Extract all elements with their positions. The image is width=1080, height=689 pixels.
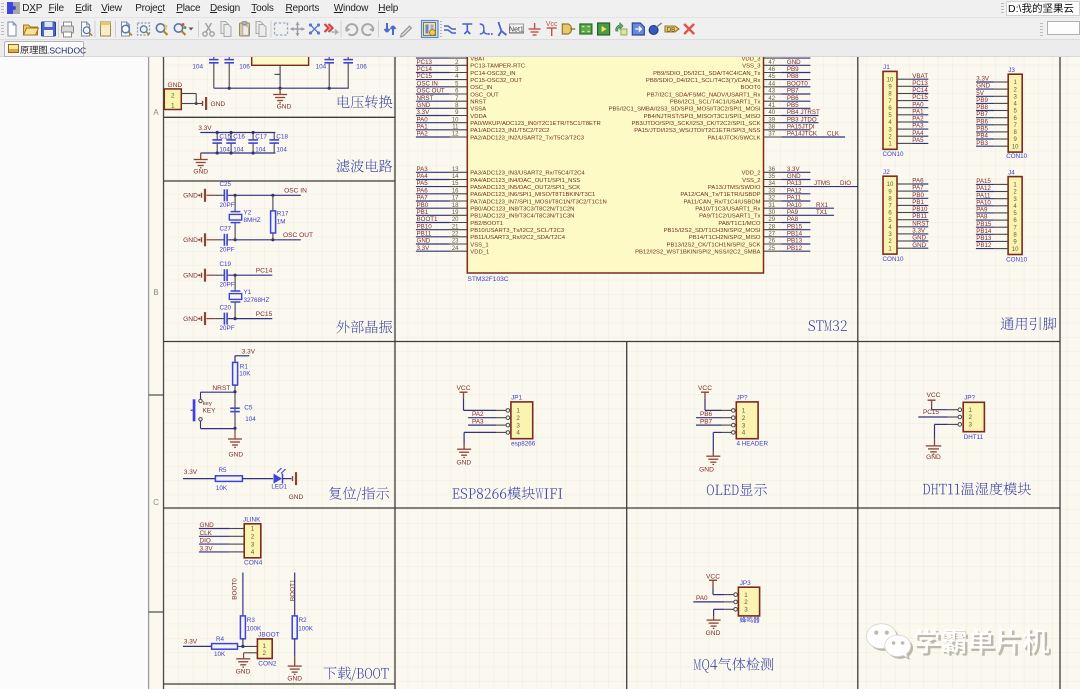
svg-text:10: 10 [452,117,459,123]
svg-text:PB4: PB4 [787,109,799,116]
svg-text:CON10: CON10 [1006,153,1027,160]
svg-text:GND: GND [277,104,292,111]
svg-text:PA3/ADC123_IN3/USART2_Rx/T5C4/: PA3/ADC123_IN3/USART2_Rx/T5C4/T2C4 [470,171,585,177]
svg-text:104: 104 [192,64,203,71]
svg-text:PB5: PB5 [976,126,988,133]
svg-text:3.3V: 3.3V [200,546,214,553]
svg-text:GND: GND [699,466,714,473]
svg-text:BOOT0: BOOT0 [787,80,809,87]
svg-text:JLINK: JLINK [243,517,261,524]
svg-text:PA15/JTDI/I2S3_WS/JTDI/T2C1ETR: PA15/JTDI/I2S3_WS/JTDI/T2C1ETR/SPI3_NSS [634,128,760,134]
svg-text:PA0/WKUP/ADC123_IN0/T2C1ETR/T5: PA0/WKUP/ADC123_IN0/T2C1ETR/T5C1/T8ETR [470,121,601,127]
svg-text:PB6: PB6 [787,95,799,102]
svg-text:20PF: 20PF [220,325,235,332]
svg-text:BOOT0: BOOT0 [741,85,762,91]
svg-text:C5: C5 [244,404,253,411]
svg-text:PC13: PC13 [912,80,928,87]
svg-text:C: C [153,498,159,507]
svg-text:GND: GND [200,522,215,529]
svg-text:GND: GND [211,101,226,108]
svg-text:Y1: Y1 [244,289,252,296]
svg-text:104: 104 [255,146,266,153]
svg-text:17: 17 [452,196,459,202]
svg-text:VDDA: VDDA [470,114,486,120]
svg-text:104: 104 [316,64,327,71]
svg-text:PB15: PB15 [787,223,803,230]
svg-text:TX1: TX1 [816,209,828,216]
svg-text:39: 39 [768,117,775,123]
svg-text:PA8: PA8 [787,216,799,223]
svg-text:4: 4 [742,430,746,437]
svg-text:20: 20 [452,217,459,223]
svg-text:PA14JTCK: PA14JTCK [787,131,818,138]
svg-text:1: 1 [744,592,748,599]
svg-text:32: 32 [768,196,775,202]
svg-text:PA12/CAN_Tx/T1ETR/USBDP: PA12/CAN_Tx/T1ETR/USBDP [680,192,760,198]
svg-text:PB4: PB4 [976,133,988,140]
svg-text:PB6/I2C1_SCL/T4C1/USART1_Tx: PB6/I2C1_SCL/T4C1/USART1_Tx [670,100,761,106]
svg-text:2: 2 [263,650,267,657]
svg-text:33: 33 [768,188,775,194]
svg-text:PB14: PB14 [787,230,803,237]
svg-text:DIO: DIO [840,180,851,187]
svg-text:GND: GND [183,316,198,323]
svg-text:PA7: PA7 [912,185,924,192]
svg-text:PA5: PA5 [912,137,924,144]
svg-text:PB14/T1CH2N/SPI2_MISO: PB14/T1CH2N/SPI2_MISO [689,235,761,241]
svg-text:GND: GND [183,193,198,200]
svg-text:36: 36 [768,167,775,173]
svg-text:PB0/ADC123_IN8/T3C3/T8C2N/T1C2: PB0/ADC123_IN8/T3C3/T8C2N/T1C2N [470,207,574,213]
svg-text:PA4: PA4 [912,130,924,137]
svg-text:PB7: PB7 [700,418,713,425]
svg-text:PA11: PA11 [787,195,802,202]
svg-text:GND: GND [787,59,801,66]
svg-text:PB13: PB13 [787,238,803,245]
svg-text:PB7/I2C1_SDA/FSMC_NADV/USART1_: PB7/I2C1_SDA/FSMC_NADV/USART1_Rx [647,92,761,98]
svg-text:PB3: PB3 [787,116,799,123]
svg-text:PB4/NJTRST/SPI3_MISO/T3C1/SPI1: PB4/NJTRST/SPI3_MISO/T3C1/SPI1_MISO [644,114,761,120]
svg-text:44: 44 [768,81,775,87]
svg-text:JTDO: JTDO [801,116,817,123]
svg-text:3.3V: 3.3V [912,228,926,235]
svg-text:PA0: PA0 [912,101,924,108]
svg-text:47: 47 [768,60,775,66]
svg-text:30: 30 [768,210,775,216]
svg-text:J4: J4 [1008,169,1015,176]
svg-text:GND: GND [287,675,302,682]
svg-text:PA2/ADC123_IN2/USART2_Tx/T5C3/: PA2/ADC123_IN2/USART2_Tx/T5C3/T2C3 [470,135,584,141]
svg-text:BOOT0: BOOT0 [232,578,239,600]
svg-text:1: 1 [251,526,255,533]
svg-text:PA9/T1C2/USART1_Tx: PA9/T1C2/USART1_Tx [699,214,760,220]
svg-text:12: 12 [452,132,459,138]
svg-text:3.3V: 3.3V [787,166,801,173]
svg-text:PC15-OSC32_OUT: PC15-OSC32_OUT [470,78,522,84]
svg-text:RX1: RX1 [816,202,829,209]
svg-text:KEY: KEY [203,408,217,415]
svg-text:BOOT1: BOOT1 [290,579,297,601]
svg-text:NRST: NRST [212,385,230,392]
svg-text:PA5/ADC123_IN5/DAC_OUT2/SPI1_S: PA5/ADC123_IN5/DAC_OUT2/SPI1_SCK [470,185,580,191]
svg-text:GND: GND [926,454,941,461]
svg-text:24: 24 [452,246,459,252]
svg-text:OSC_OUT: OSC_OUT [470,92,499,98]
svg-text:25: 25 [768,246,775,252]
svg-text:PB9: PB9 [976,97,988,104]
svg-text:3.3V: 3.3V [976,76,990,83]
svg-text:CON2: CON2 [258,660,277,667]
svg-text:.SCHDOC: .SCHDOC [47,46,86,56]
svg-text:CON10: CON10 [883,151,904,158]
svg-text:R17: R17 [277,211,289,218]
svg-text:GND: GND [456,459,471,466]
svg-text:PA9: PA9 [976,207,988,214]
svg-text:PA10: PA10 [787,202,802,209]
svg-text:3.3V: 3.3V [198,125,212,132]
svg-text:PC14: PC14 [256,268,273,275]
svg-text:PB6: PB6 [976,118,988,125]
svg-text:GND: GND [976,83,990,90]
svg-text:esp8266: esp8266 [511,441,536,448]
svg-text:PB11: PB11 [912,213,927,220]
svg-text:PC15: PC15 [256,311,273,318]
svg-text:Vcc: Vcc [546,21,558,28]
svg-text:106: 106 [239,64,250,71]
svg-text:JTRST: JTRST [801,109,820,116]
svg-text:PA15JTDI: PA15JTDI [787,123,815,130]
svg-text:GND: GND [706,630,721,637]
svg-text:20PF: 20PF [220,282,235,289]
svg-text:PA10/T1C3/USART1_Rx: PA10/T1C3/USART1_Rx [695,207,760,213]
svg-text:PA12: PA12 [976,185,991,192]
svg-text:VSSA: VSSA [470,107,486,113]
svg-text:PB14: PB14 [976,228,992,235]
svg-text:PA8: PA8 [976,214,988,221]
svg-text:10: 10 [1012,144,1019,150]
svg-text:PB7: PB7 [787,88,799,95]
svg-text:10: 10 [887,182,894,188]
svg-text:104: 104 [276,146,287,153]
svg-text:1: 1 [516,408,520,415]
svg-text:DIO: DIO [200,538,211,545]
svg-text:22: 22 [452,231,459,237]
svg-text:10: 10 [1012,247,1019,253]
svg-text:C27: C27 [220,226,232,233]
svg-text:PA14/JTCK/SWCLK: PA14/JTCK/SWCLK [708,135,761,141]
svg-text:20PF: 20PF [220,202,235,209]
svg-text:104: 104 [219,146,230,153]
svg-text:R1: R1 [240,363,249,370]
svg-text:key: key [203,401,212,407]
svg-text:GND: GND [787,173,801,180]
svg-text:J3: J3 [1008,67,1015,74]
svg-text:NRST: NRST [912,220,929,227]
svg-text:PB2/BOOT1: PB2/BOOT1 [470,221,503,227]
svg-text:VSS_2: VSS_2 [742,178,760,184]
svg-text:PC14: PC14 [912,87,928,94]
svg-text:PB12: PB12 [976,242,992,249]
svg-text:GND: GND [183,273,198,280]
svg-text:37: 37 [768,132,775,138]
svg-text:VSS_1: VSS_1 [470,242,488,248]
svg-text:32768HZ: 32768HZ [244,297,270,304]
svg-text:PB9: PB9 [787,66,799,73]
svg-text:104: 104 [245,416,256,423]
svg-text:JTMS: JTMS [814,180,830,187]
svg-text:C18: C18 [276,134,288,141]
svg-text:1: 1 [171,102,175,109]
svg-text:34: 34 [768,181,775,187]
svg-text:PB8/SDIO_D4/I2C1_SCL/T4C3(7)/C: PB8/SDIO_D4/I2C1_SCL/T4C3(7)/CAN_Rx [646,78,761,84]
svg-text:VSS_3: VSS_3 [742,64,761,70]
svg-text:VDD_3: VDD_3 [742,57,762,62]
svg-text:3: 3 [742,422,746,429]
svg-text:2: 2 [744,599,748,606]
svg-text:26: 26 [768,239,775,245]
svg-text:11: 11 [452,124,459,130]
svg-text:16: 16 [452,188,459,194]
svg-text:GND: GND [193,169,208,176]
svg-text:20PF: 20PF [220,246,235,253]
svg-text:CON10: CON10 [1006,256,1027,263]
svg-text:CON10: CON10 [883,256,904,263]
svg-text:PA4/ADC123_IN4/DAC_OUT1/SPI1_N: PA4/ADC123_IN4/DAC_OUT1/SPI1_NSS [470,178,580,184]
svg-text:106: 106 [356,64,367,71]
svg-text:DB: DB [667,28,675,34]
svg-text:C19: C19 [220,261,232,268]
svg-text:CLK: CLK [827,131,840,138]
svg-text:PC13-TAMPER-RTC: PC13-TAMPER-RTC [470,64,526,70]
svg-text:B: B [153,288,158,297]
svg-text:4: 4 [516,430,520,437]
svg-text:2: 2 [171,92,175,99]
svg-text:VDD_2: VDD_2 [742,171,761,177]
svg-text:4 HEADER: 4 HEADER [737,441,769,448]
svg-text:2: 2 [251,534,255,541]
svg-text:PB13/I2S2_CK/T1CH1N/SPI2_SCK: PB13/I2S2_CK/T1CH1N/SPI2_SCK [667,242,761,248]
svg-text:C25: C25 [220,181,232,188]
svg-text:31: 31 [768,203,775,209]
svg-text:PB10: PB10 [912,206,928,213]
svg-text:3: 3 [516,422,520,429]
svg-text:10K: 10K [216,485,228,492]
svg-text:D:\: D:\ [1008,3,1022,15]
svg-text:41: 41 [768,103,775,109]
svg-text:OSC IN: OSC IN [284,188,307,195]
svg-text:VCC: VCC [698,385,712,392]
svg-text:PA7/ADC123_IN7/SPI1_MOSI/T8C1N: PA7/ADC123_IN7/SPI1_MOSI/T8C1N/T3C2/T1C1… [470,199,606,205]
svg-text:40: 40 [768,110,775,116]
svg-text:JP?: JP? [737,394,748,401]
svg-text:PA2: PA2 [472,411,484,418]
svg-text:VDD_1: VDD_1 [470,250,489,256]
svg-text:J1: J1 [883,64,890,71]
svg-text:43: 43 [768,89,775,95]
svg-text:PA6/ADC123_IN6/SPI1_MISO/T8T1B: PA6/ADC123_IN6/SPI1_MISO/T8T1BKIN/T3C1 [470,192,595,198]
svg-text:PA9: PA9 [787,209,799,216]
svg-text:3: 3 [969,422,973,429]
svg-text:PB7: PB7 [976,111,988,118]
svg-text:1M: 1M [277,219,286,226]
svg-text:27: 27 [768,231,775,237]
svg-text:PA11: PA11 [976,192,991,199]
svg-text:PA11/CAN_Rx/T1C4/USBDM: PA11/CAN_Rx/T1C4/USBDM [683,199,760,205]
svg-text:PB1: PB1 [912,199,924,206]
svg-text:1: 1 [969,407,973,414]
svg-text:14: 14 [452,174,459,180]
svg-text:PA2: PA2 [912,116,924,123]
svg-text:35: 35 [768,174,775,180]
svg-text:Y2: Y2 [244,210,252,217]
svg-text:4: 4 [251,549,255,556]
svg-text:JP3: JP3 [740,580,751,587]
svg-text:3: 3 [744,607,748,614]
svg-text:PB8: PB8 [976,104,988,111]
svg-text:A: A [153,108,159,117]
svg-text:2: 2 [516,415,520,422]
svg-text:PA10: PA10 [976,199,991,206]
svg-text:PA0: PA0 [696,595,708,602]
svg-text:3: 3 [251,541,255,548]
svg-text:PB13: PB13 [976,235,992,242]
svg-text:PA13: PA13 [787,180,802,187]
svg-text:JP1: JP1 [511,394,522,401]
svg-text:C20: C20 [220,304,232,311]
svg-text:PA1/ADC123_IN1/T5C2/T2C2: PA1/ADC123_IN1/T5C2/T2C2 [470,128,549,134]
svg-text:OSC_IN: OSC_IN [470,85,492,91]
svg-text:PB0: PB0 [912,192,924,199]
svg-text:28: 28 [768,224,775,230]
svg-text:21: 21 [452,224,459,230]
svg-text:13: 13 [452,167,459,173]
svg-text:LED1: LED1 [271,483,287,490]
svg-text:PB15/I2S2_SD/T1CH3N/SPI2_MOSI: PB15/I2S2_SD/T1CH3N/SPI2_MOSI [664,228,761,234]
svg-text:PA15: PA15 [976,178,991,185]
svg-text:VCC: VCC [457,385,471,392]
svg-text:C16: C16 [233,134,245,141]
svg-text:100K: 100K [298,625,314,632]
svg-text:PA6: PA6 [912,178,924,185]
svg-text:GND: GND [168,82,183,89]
svg-text:48: 48 [768,57,775,59]
svg-text:VBAT: VBAT [470,57,485,62]
svg-text:18: 18 [452,203,459,209]
svg-text:PA3: PA3 [472,418,484,425]
svg-text:OSC OUT: OSC OUT [283,232,313,239]
svg-text:NRST: NRST [470,100,486,106]
svg-text:PB11/USART3_Rx/I2C2_SDA/T2C4: PB11/USART3_Rx/I2C2_SDA/T2C4 [470,235,565,241]
svg-text:VBAT: VBAT [912,73,928,80]
svg-text:PB5/I2C1_SMBA/I2S3_SD/SPI3_MOS: PB5/I2C1_SMBA/I2S3_SD/SPI3_MOSI/T3C2/SPI… [609,107,761,113]
svg-text:10: 10 [887,77,894,83]
svg-text:PB12/I2S2_WST1BKIN/SPI2_NSS/I2: PB12/I2S2_WST1BKIN/SPI2_NSS/I2C2_SMBA [635,250,760,256]
svg-text:1: 1 [742,408,746,415]
svg-text:3.3V: 3.3V [242,349,256,356]
svg-text:PB3/JTDO/SPI3_SCK/I2S3_CK/T2C2: PB3/JTDO/SPI3_SCK/I2S3_CK/T2C2/SPI1_SCK [632,121,761,127]
svg-text:19: 19 [452,210,459,216]
svg-text:3.3V: 3.3V [184,469,198,476]
svg-text:Net1: Net1 [509,27,524,34]
svg-text:PB3: PB3 [976,140,988,147]
svg-text:PB12: PB12 [787,245,803,252]
svg-text:15: 15 [452,181,459,187]
svg-text:GND: GND [912,235,926,242]
svg-text:GND: GND [228,452,243,459]
svg-text:10K: 10K [239,371,251,378]
svg-text:STM32F103C: STM32F103C [468,276,509,283]
svg-text:GND: GND [912,242,926,249]
svg-text:PB9/SDIO_D5/I2C1_SDA/T4C4/CAN_: PB9/SDIO_D5/I2C1_SDA/T4C4/CAN_Tx [653,71,760,77]
svg-text:PC15: PC15 [923,409,939,416]
svg-text:2: 2 [969,414,973,421]
svg-text:CLK: CLK [200,530,213,537]
svg-text:VCC: VCC [926,392,940,399]
svg-text:GND: GND [236,668,251,675]
svg-text:JP?: JP? [964,395,975,402]
svg-text:3.3V: 3.3V [184,639,198,646]
svg-text:104: 104 [233,146,244,153]
svg-text:46: 46 [768,67,775,73]
svg-text:5V: 5V [976,90,984,97]
svg-text:PA3: PA3 [912,123,924,130]
svg-text:PB15: PB15 [976,221,992,228]
svg-text:PB1/ADC123_IN9/T3C4/T8C3N/T1C3: PB1/ADC123_IN9/T3C4/T8C3N/T1C3N [470,214,574,220]
svg-text:8MHZ: 8MHZ [244,217,261,224]
svg-text:2: 2 [742,415,746,422]
svg-text:DHT11: DHT11 [964,434,984,441]
svg-text:PB6: PB6 [700,411,713,418]
svg-text:R5: R5 [218,467,227,474]
svg-text:J2: J2 [883,169,890,176]
svg-text:GND: GND [289,494,304,501]
svg-text:45: 45 [768,74,775,80]
svg-text:PA1: PA1 [912,108,924,115]
svg-text:PA12: PA12 [787,187,802,194]
svg-text:PC14-OSC32_IN: PC14-OSC32_IN [470,71,515,77]
svg-text:23: 23 [452,239,459,245]
svg-text:PB10/USART3_Tx/I2C2_SCL/T2C3: PB10/USART3_Tx/I2C2_SCL/T2C3 [470,228,565,234]
svg-text:38: 38 [768,124,775,130]
svg-text:42: 42 [768,96,775,102]
svg-text:CON4: CON4 [244,560,263,567]
svg-text:C17: C17 [255,134,267,141]
svg-text:PC15: PC15 [912,94,928,101]
svg-text:VCC: VCC [706,573,720,580]
svg-text:PB8: PB8 [787,73,799,80]
svg-text:PB5: PB5 [787,102,799,109]
svg-text:R2: R2 [299,617,308,624]
svg-text:10K: 10K [214,651,226,658]
svg-text:PA13/JTMS/SWDIO: PA13/JTMS/SWDIO [708,185,761,191]
svg-text:GND: GND [183,237,198,244]
svg-text:PA8/T1C1/MCO: PA8/T1C1/MCO [718,221,761,227]
svg-text:29: 29 [768,217,775,223]
svg-text:R4: R4 [216,636,225,643]
svg-text:JBOOT: JBOOT [258,631,279,638]
svg-text:R3: R3 [247,617,256,624]
